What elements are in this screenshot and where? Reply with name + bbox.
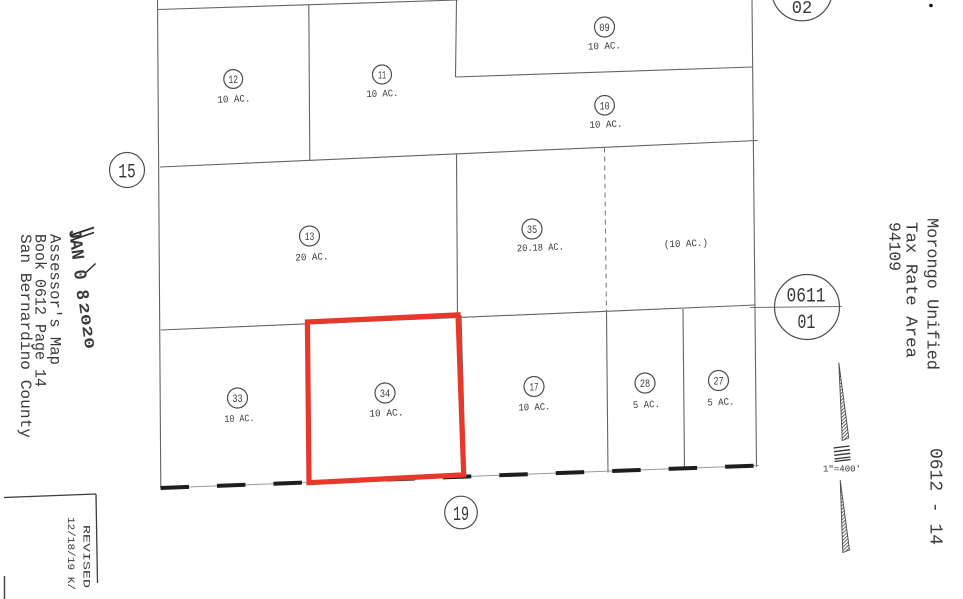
svg-text:10 AC.: 10 AC. [224,414,254,426]
svg-text:5 AC.: 5 AC. [633,400,660,412]
svg-text:5 AC.: 5 AC. [707,398,734,410]
svg-text:Morongo Unified: Morongo Unified [922,218,941,370]
svg-text:10: 10 [600,101,610,113]
svg-text:34: 34 [380,389,391,401]
svg-text:0612 - 14: 0612 - 14 [925,448,945,545]
svg-text:09: 09 [599,23,610,35]
svg-text:13: 13 [305,232,315,244]
svg-text:10 AC.: 10 AC. [217,94,250,106]
svg-text:10 AC.: 10 AC. [366,89,398,101]
svg-text:19: 19 [453,504,469,527]
svg-text:33: 33 [232,394,242,406]
svg-text:17: 17 [530,383,539,395]
svg-text:12: 12 [228,75,238,87]
svg-text:1"=400': 1"=400' [823,464,861,475]
svg-text:0611: 0611 [787,286,826,309]
svg-text:01: 01 [797,312,815,335]
svg-text:REVISED: REVISED [80,525,92,588]
svg-text:11: 11 [378,71,386,83]
svg-text:35: 35 [527,225,537,237]
svg-text:12/18/19 K/: 12/18/19 K/ [64,517,76,590]
svg-text:15: 15 [118,162,136,185]
svg-text:27: 27 [713,377,723,389]
svg-text:(10 AC.): (10 AC.) [664,238,708,252]
svg-text:10 AC.: 10 AC. [369,408,403,420]
svg-text:10 AC.: 10 AC. [518,402,550,414]
svg-text:20 AC.: 20 AC. [295,252,328,264]
svg-text:10 AC.: 10 AC. [588,41,621,53]
svg-text:94109: 94109 [884,222,903,271]
svg-text:28: 28 [640,379,650,391]
svg-text:20.18 AC.: 20.18 AC. [517,243,564,256]
svg-text:10 AC.: 10 AC. [589,120,622,132]
svg-text:San Bernardino County: San Bernardino County [16,234,34,438]
svg-text:02: 02 [792,0,813,19]
